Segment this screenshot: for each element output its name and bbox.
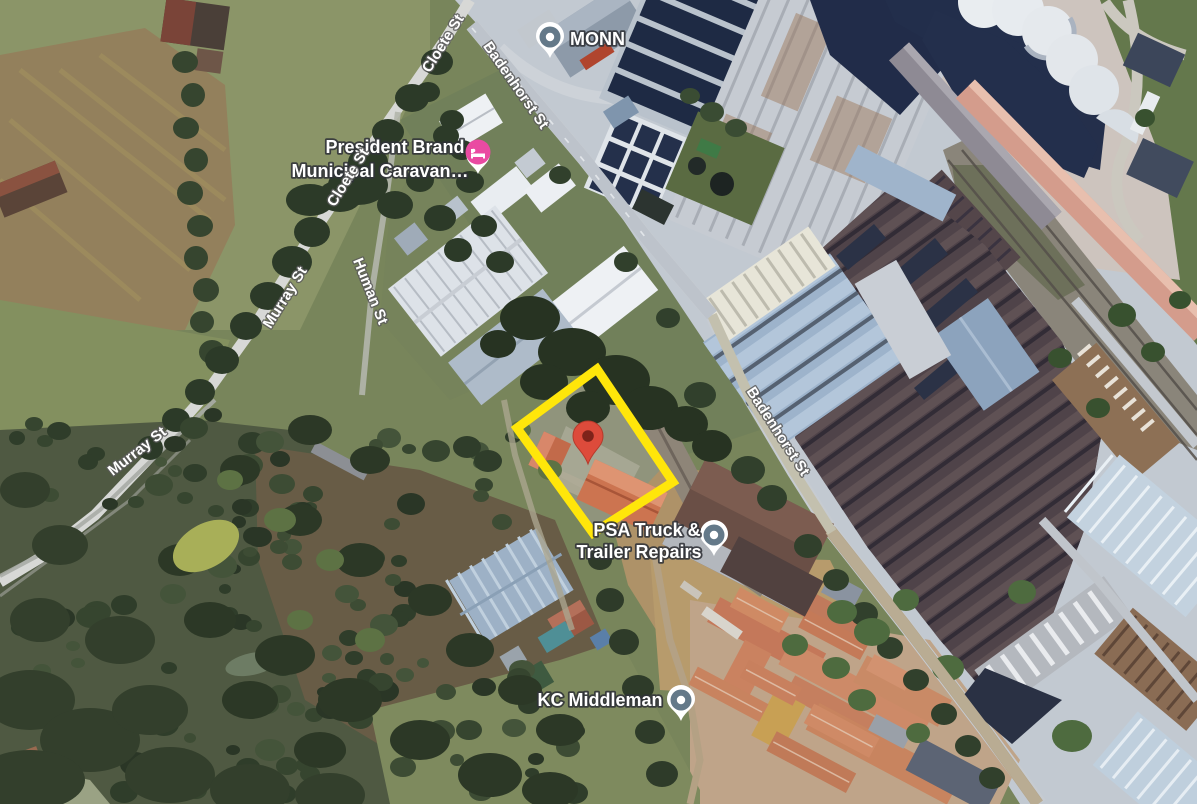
svg-text:Municipal Caravan…: Municipal Caravan… bbox=[291, 161, 468, 181]
svg-text:KC Middleman: KC Middleman bbox=[537, 690, 662, 710]
svg-text:President Brand: President Brand bbox=[325, 137, 464, 157]
svg-text:MONN: MONN bbox=[570, 29, 625, 49]
svg-text:PSA Truck &: PSA Truck & bbox=[593, 520, 700, 540]
svg-text:Trailer Repairs: Trailer Repairs bbox=[576, 542, 701, 562]
